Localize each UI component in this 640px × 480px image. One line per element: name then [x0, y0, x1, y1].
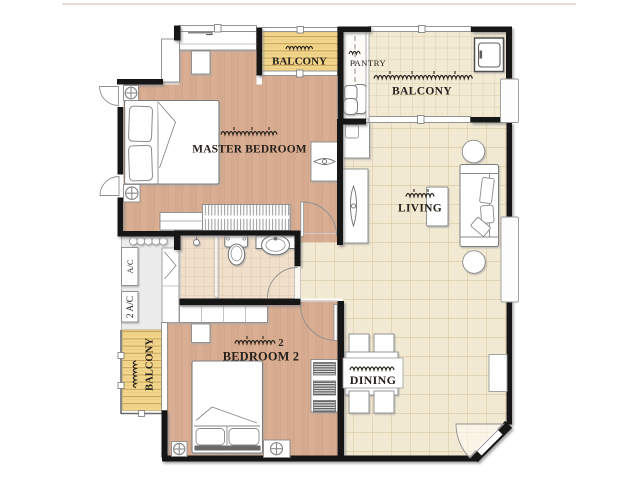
- svg-text:BALCONY: BALCONY: [145, 338, 156, 391]
- svg-text:2: 2: [278, 338, 283, 349]
- svg-text:A/C: A/C: [125, 259, 135, 274]
- svg-text:PANTRY: PANTRY: [350, 58, 387, 68]
- svg-text:BALCONY: BALCONY: [272, 56, 327, 68]
- svg-text:BALCONY: BALCONY: [392, 85, 452, 98]
- svg-text:LIVING: LIVING: [398, 203, 442, 215]
- svg-text:MASTER BEDROOM: MASTER BEDROOM: [192, 144, 307, 156]
- svg-text:DINING: DINING: [350, 373, 396, 387]
- svg-text:2 A/C: 2 A/C: [126, 296, 136, 318]
- svg-text:BEDROOM 2: BEDROOM 2: [223, 350, 300, 364]
